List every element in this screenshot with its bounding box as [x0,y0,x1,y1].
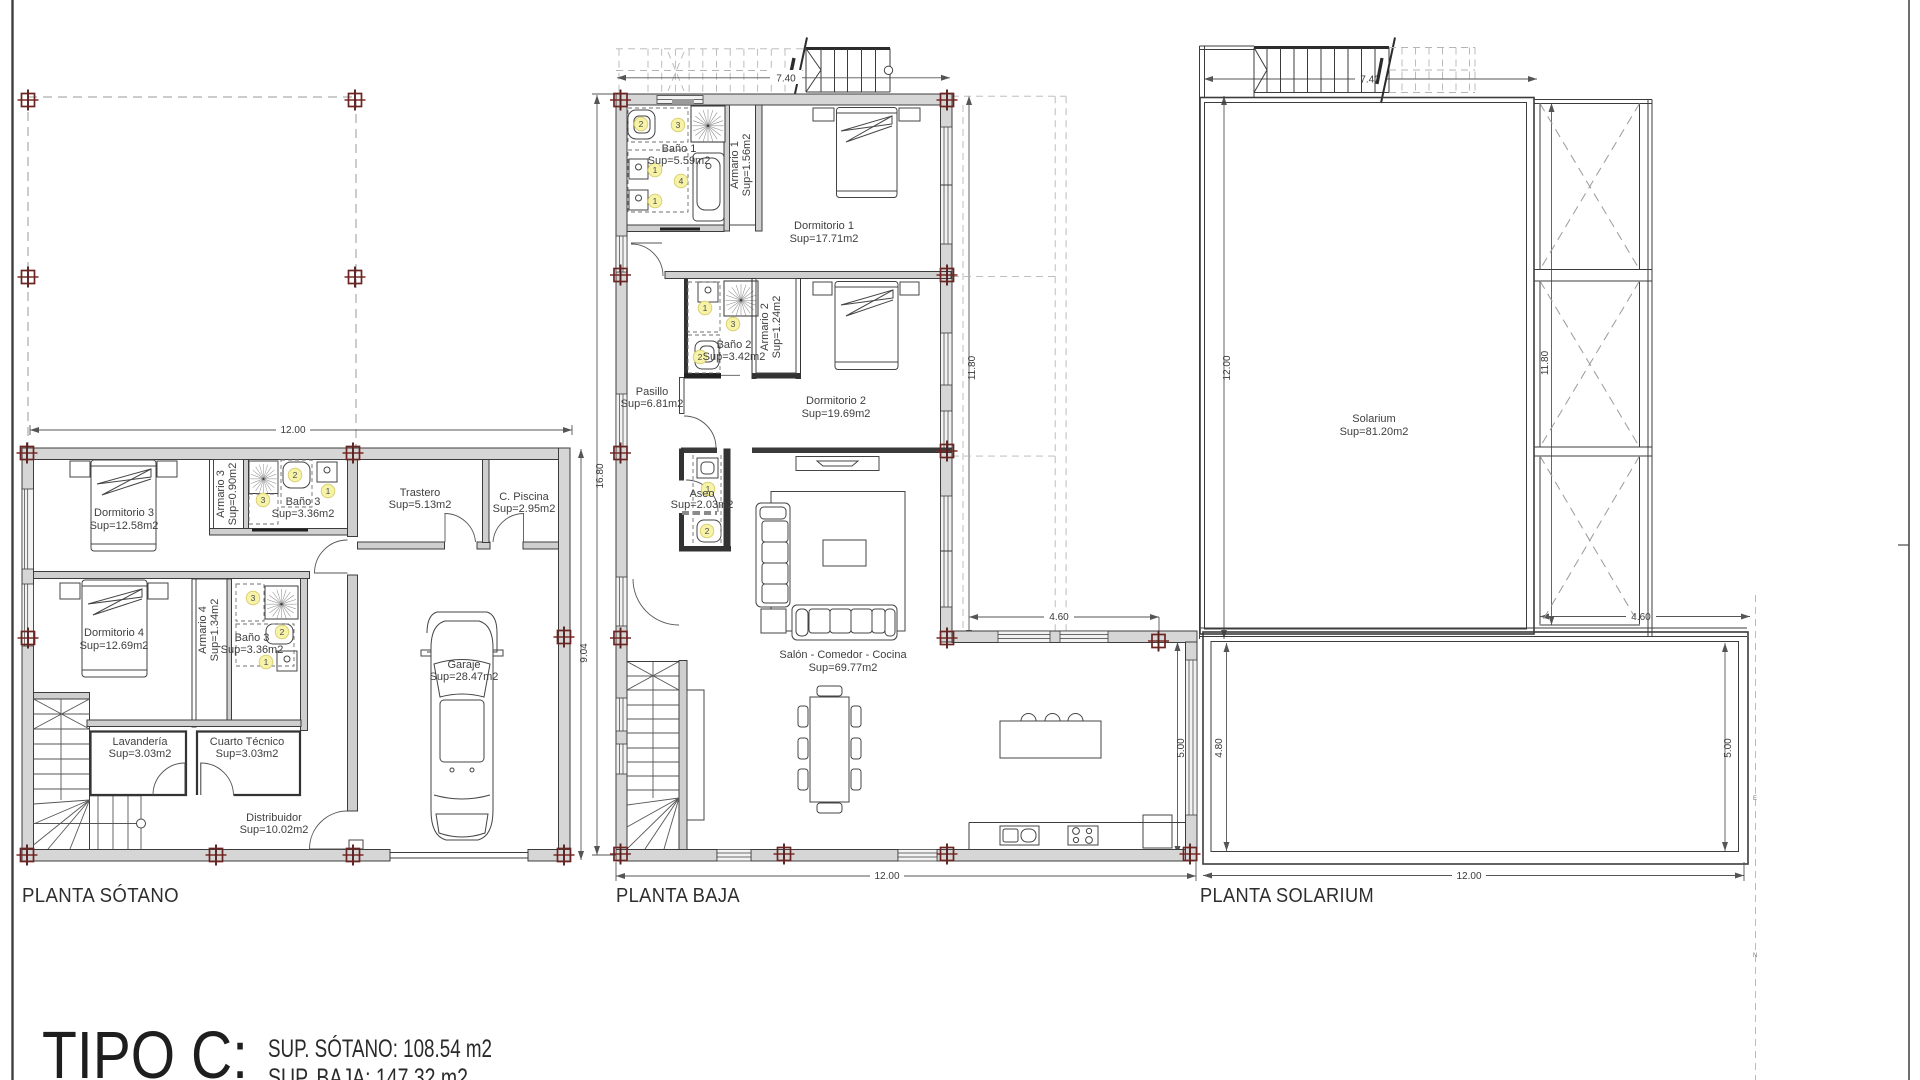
svg-text:3: 3 [676,120,681,130]
svg-text:4.80: 4.80 [1214,738,1225,758]
svg-text:Sup=10.02m2: Sup=10.02m2 [240,824,309,836]
svg-text:2: 2 [293,470,298,480]
svg-text:PLANTA BAJA: PLANTA BAJA [616,884,740,907]
svg-text:Trastero: Trastero [400,487,441,499]
svg-text:12.00: 12.00 [874,871,899,882]
svg-text:Sup=12.69m2: Sup=12.69m2 [80,640,149,652]
svg-text:Dormitorio 1: Dormitorio 1 [794,220,854,232]
svg-text:Baño 2: Baño 2 [717,339,752,351]
svg-text:12.00: 12.00 [280,425,305,436]
svg-text:12.00: 12.00 [1456,871,1481,882]
svg-text:Armario 2: Armario 2 [759,303,771,351]
svg-text:11.80: 11.80 [967,355,978,380]
svg-text:Baño 3: Baño 3 [286,496,321,508]
svg-text:PLANTA SOLARIUM: PLANTA SOLARIUM [1200,884,1374,907]
svg-text:3: 3 [261,495,266,505]
svg-text:Armario 4: Armario 4 [197,606,209,654]
svg-text:1: 1 [326,486,331,496]
svg-text:3: 3 [731,319,736,329]
svg-text:Sup=1.34m2: Sup=1.34m2 [209,599,221,662]
svg-text:SUP. SÓTANO: 108.54 m2: SUP. SÓTANO: 108.54 m2 [268,1034,492,1063]
svg-text:Distribuidor: Distribuidor [246,812,302,824]
svg-text:Sup=17.71m2: Sup=17.71m2 [790,233,859,245]
svg-text:1: 1 [264,657,269,667]
svg-text:Dormitorio 2: Dormitorio 2 [806,395,866,407]
svg-text:PLANTA SÓTANO: PLANTA SÓTANO [22,884,179,907]
svg-text:Sup=5.59m2: Sup=5.59m2 [648,155,711,167]
svg-text:Sup=3.36m2: Sup=3.36m2 [221,644,284,656]
svg-text:Sup=1.24m2: Sup=1.24m2 [771,296,783,359]
svg-text:Sup=2.03m2: Sup=2.03m2 [671,499,734,511]
svg-text:2: 2 [639,119,644,129]
svg-text:Sup=12.58m2: Sup=12.58m2 [90,520,159,532]
svg-text:Sup=81.20m2: Sup=81.20m2 [1340,426,1409,438]
svg-text:N: N [1753,953,1757,959]
svg-text:Dormitorio 3: Dormitorio 3 [94,507,154,519]
svg-text:Pasillo: Pasillo [636,386,668,398]
svg-text:4.60: 4.60 [1049,612,1069,623]
svg-text:2: 2 [705,526,710,536]
svg-text:3: 3 [251,593,256,603]
svg-text:TIPO C:: TIPO C: [42,1018,248,1080]
svg-text:C. Piscina: C. Piscina [499,491,549,503]
svg-text:Armario 3: Armario 3 [215,470,227,518]
svg-text:Sup=1.56m2: Sup=1.56m2 [741,134,753,197]
svg-text:Sup=3.03m2: Sup=3.03m2 [216,748,279,760]
svg-text:Sup=5.13m2: Sup=5.13m2 [389,499,452,511]
svg-text:Sup=3.03m2: Sup=3.03m2 [109,748,172,760]
svg-text:Sup=3.36m2: Sup=3.36m2 [272,508,335,520]
svg-text:E: E [1753,796,1757,802]
svg-text:5.00: 5.00 [1723,738,1734,758]
svg-text:Baño 3: Baño 3 [235,632,270,644]
svg-text:1: 1 [653,196,658,206]
svg-text:Sup=6.81m2: Sup=6.81m2 [621,398,684,410]
svg-text:4: 4 [679,176,684,186]
svg-text:Salón - Comedor - Cocina: Salón - Comedor - Cocina [779,649,907,661]
svg-text:Armario 1: Armario 1 [729,141,741,189]
svg-text:Solarium: Solarium [1352,413,1395,425]
svg-text:Dormitorio 4: Dormitorio 4 [84,627,144,639]
svg-text:Sup=0.90m2: Sup=0.90m2 [227,463,239,526]
svg-text:2: 2 [280,627,285,637]
svg-text:Cuarto Técnico: Cuarto Técnico [210,736,284,748]
svg-text:11.80: 11.80 [1540,350,1551,375]
svg-text:9.04: 9.04 [579,643,590,663]
svg-text:SUP. BAJA: 147.32 m2: SUP. BAJA: 147.32 m2 [268,1064,468,1080]
svg-text:Sup=69.77m2: Sup=69.77m2 [809,662,878,674]
svg-text:Lavandería: Lavandería [112,736,168,748]
svg-text:Sup=2.95m2: Sup=2.95m2 [493,503,556,515]
svg-text:12.00: 12.00 [1222,355,1233,380]
svg-text:Sup=19.69m2: Sup=19.69m2 [802,408,871,420]
svg-text:1: 1 [703,303,708,313]
svg-text:7.40: 7.40 [776,74,796,85]
svg-text:Baño 1: Baño 1 [662,143,697,155]
svg-text:16.80: 16.80 [595,463,606,488]
